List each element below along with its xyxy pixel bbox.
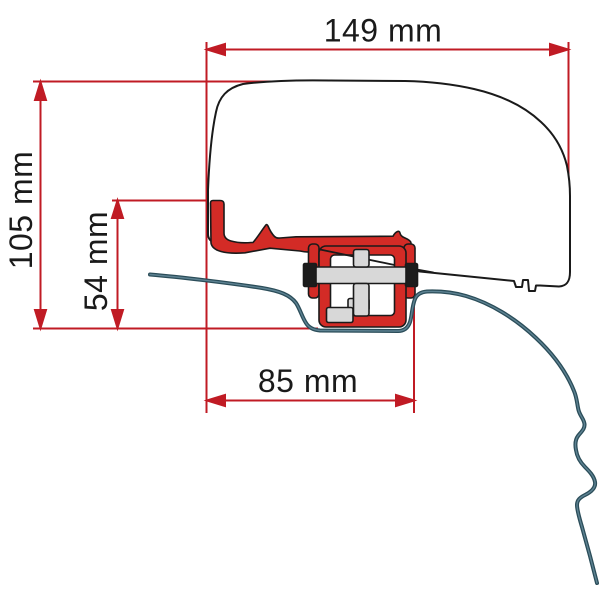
- drawing-canvas: 149 mm 105 mm 54 mm 85 mm: [0, 0, 600, 600]
- bolt-upper: [354, 250, 370, 268]
- clamp-pad-left: [304, 264, 317, 287]
- dimension-149-arrow-left: [207, 44, 225, 55]
- dimension-105-arrow-top: [35, 82, 46, 100]
- dimension-85-arrow-right: [396, 395, 414, 406]
- dimension-85-arrow-left: [207, 395, 225, 406]
- clamp-pad-right: [406, 264, 418, 287]
- dimension-54-label: 54 mm: [78, 211, 114, 311]
- dimension-105-label: 105 mm: [3, 151, 39, 270]
- bolt-lower: [354, 284, 370, 317]
- dimension-149-arrow-right: [550, 44, 568, 55]
- step-block-lower: [327, 308, 354, 323]
- dimension-54-arrow-bottom: [112, 310, 123, 328]
- adapter-dimension-diagram: 149 mm 105 mm 54 mm 85 mm: [0, 0, 600, 600]
- mounting-plate: [316, 267, 406, 284]
- dimension-85-label: 85 mm: [258, 363, 358, 399]
- dimension-149-label: 149 mm: [324, 13, 443, 49]
- dimension-105-arrow-bottom: [35, 310, 46, 328]
